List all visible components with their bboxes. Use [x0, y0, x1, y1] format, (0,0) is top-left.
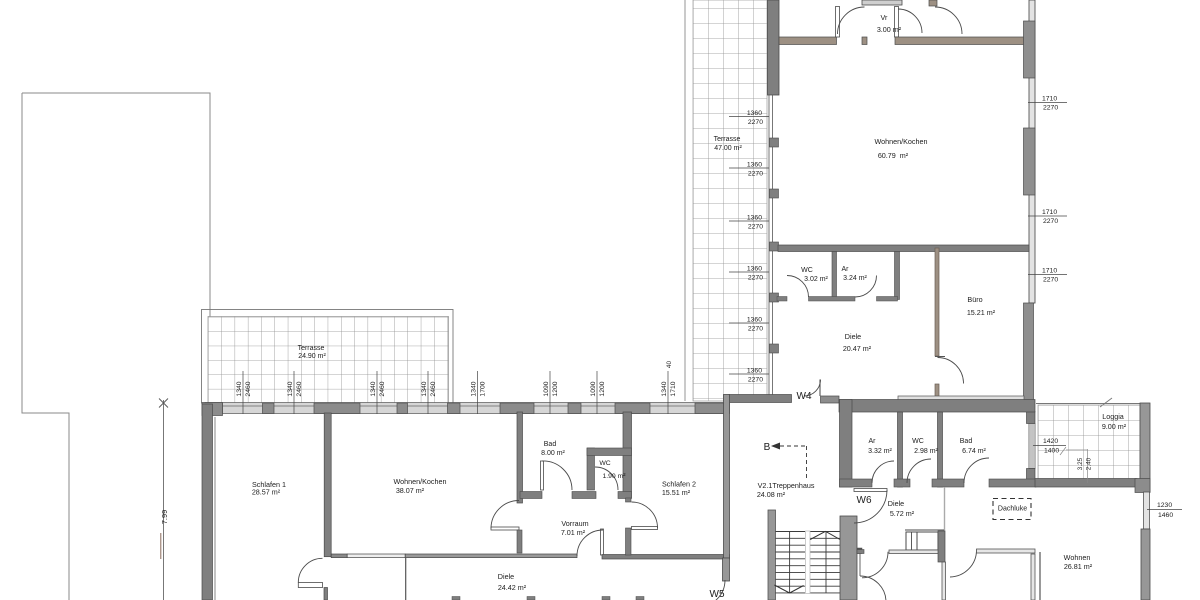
- svg-text:1460: 1460: [1158, 512, 1173, 519]
- svg-text:1360: 1360: [747, 215, 762, 222]
- svg-text:Wohnen/Kochen: Wohnen/Kochen: [874, 137, 927, 146]
- svg-text:38.07 m²: 38.07 m²: [396, 486, 425, 495]
- svg-text:24.08 m²: 24.08 m²: [757, 490, 786, 499]
- svg-text:2460: 2460: [430, 381, 437, 396]
- svg-text:1200: 1200: [552, 381, 559, 396]
- svg-text:15.21 m²: 15.21 m²: [967, 308, 996, 317]
- svg-text:2460: 2460: [296, 381, 303, 396]
- svg-text:3.00 m²: 3.00 m²: [877, 25, 902, 34]
- svg-text:7.01 m²: 7.01 m²: [561, 528, 586, 537]
- svg-text:1340: 1340: [370, 381, 377, 396]
- svg-text:W5: W5: [710, 589, 725, 600]
- svg-text:1090: 1090: [590, 381, 597, 396]
- svg-text:6.74 m²: 6.74 m²: [962, 448, 986, 455]
- svg-text:1400: 1400: [1044, 448, 1059, 455]
- svg-text:47.00 m²: 47.00 m²: [714, 145, 742, 152]
- svg-text:5.72 m²: 5.72 m²: [890, 509, 915, 518]
- svg-text:1360: 1360: [747, 162, 762, 169]
- svg-text:1200: 1200: [599, 381, 606, 396]
- svg-text:3.02 m²: 3.02 m²: [804, 276, 828, 283]
- svg-text:Büro: Büro: [967, 295, 982, 304]
- svg-text:2270: 2270: [1043, 105, 1058, 112]
- svg-text:2270: 2270: [748, 377, 763, 384]
- svg-text:1710: 1710: [670, 381, 677, 396]
- svg-text:2270: 2270: [748, 119, 763, 126]
- svg-text:WC: WC: [599, 460, 610, 467]
- svg-text:40: 40: [666, 361, 673, 369]
- svg-text:1710: 1710: [1042, 96, 1057, 103]
- svg-text:1360: 1360: [747, 110, 762, 117]
- svg-text:2.98 m²: 2.98 m²: [914, 448, 938, 455]
- svg-text:1340: 1340: [236, 381, 243, 396]
- svg-text:1700: 1700: [480, 381, 487, 396]
- svg-text:Vorraum: Vorraum: [561, 519, 588, 528]
- svg-text:1360: 1360: [747, 266, 762, 273]
- svg-text:1420: 1420: [1043, 438, 1058, 445]
- svg-text:2460: 2460: [379, 381, 386, 396]
- svg-text:8.00 m²: 8.00 m²: [541, 450, 565, 457]
- svg-text:26.81 m²: 26.81 m²: [1064, 562, 1093, 571]
- svg-text:60.79 m²: 60.79 m²: [878, 151, 909, 160]
- svg-text:Ar: Ar: [842, 266, 850, 273]
- svg-text:2270: 2270: [748, 275, 763, 282]
- svg-text:Wohnen: Wohnen: [1064, 553, 1091, 562]
- svg-text:1.90 m²: 1.90 m²: [602, 473, 626, 480]
- svg-text:3.25: 3.25: [1077, 457, 1084, 470]
- svg-text:WC: WC: [801, 267, 813, 274]
- svg-text:1340: 1340: [421, 381, 428, 396]
- svg-text:2270: 2270: [1043, 218, 1058, 225]
- svg-text:1340: 1340: [470, 381, 477, 396]
- svg-text:Dachluke: Dachluke: [998, 506, 1027, 513]
- svg-text:1340: 1340: [287, 381, 294, 396]
- svg-text:24.90 m²: 24.90 m²: [298, 353, 326, 360]
- svg-text:9.00 m²: 9.00 m²: [1102, 422, 1127, 431]
- svg-text:1340: 1340: [661, 381, 668, 396]
- svg-text:Diele: Diele: [845, 332, 861, 341]
- svg-text:Loggia: Loggia: [1102, 412, 1124, 421]
- svg-text:Terrasse: Terrasse: [714, 136, 741, 143]
- svg-text:Ar: Ar: [869, 438, 877, 445]
- svg-text:28.57 m²: 28.57 m²: [252, 488, 281, 497]
- svg-text:1090: 1090: [543, 381, 550, 396]
- svg-text:3.24 m²: 3.24 m²: [843, 275, 867, 282]
- svg-text:3.32 m²: 3.32 m²: [868, 448, 892, 455]
- svg-text:1360: 1360: [747, 368, 762, 375]
- svg-text:Terrasse: Terrasse: [298, 345, 325, 352]
- svg-text:2.40: 2.40: [1086, 457, 1093, 470]
- svg-text:V2.1Treppenhaus: V2.1Treppenhaus: [758, 481, 815, 490]
- svg-text:20.47 m²: 20.47 m²: [843, 344, 872, 353]
- svg-text:15.51 m²: 15.51 m²: [662, 488, 691, 497]
- svg-text:2270: 2270: [748, 224, 763, 231]
- svg-text:Bad: Bad: [544, 441, 557, 448]
- svg-text:1360: 1360: [747, 317, 762, 324]
- svg-text:2270: 2270: [748, 326, 763, 333]
- svg-text:B: B: [764, 442, 771, 453]
- svg-text:1230: 1230: [1157, 502, 1172, 509]
- svg-text:Vr: Vr: [881, 13, 889, 22]
- svg-text:Diele: Diele: [498, 572, 514, 581]
- svg-text:1710: 1710: [1042, 209, 1057, 216]
- svg-text:WC: WC: [912, 438, 924, 445]
- svg-text:1710: 1710: [1042, 268, 1057, 275]
- svg-text:2270: 2270: [1043, 277, 1058, 284]
- svg-text:W4: W4: [797, 391, 812, 402]
- svg-text:2270: 2270: [748, 171, 763, 178]
- svg-text:Diele: Diele: [888, 499, 904, 508]
- svg-text:7.99: 7.99: [160, 510, 169, 524]
- svg-text:2460: 2460: [245, 381, 252, 396]
- svg-text:24.42 m²: 24.42 m²: [498, 583, 527, 592]
- svg-text:Wohnen/Kochen: Wohnen/Kochen: [393, 477, 446, 486]
- svg-text:W6: W6: [857, 495, 872, 506]
- svg-text:Bad: Bad: [960, 438, 973, 445]
